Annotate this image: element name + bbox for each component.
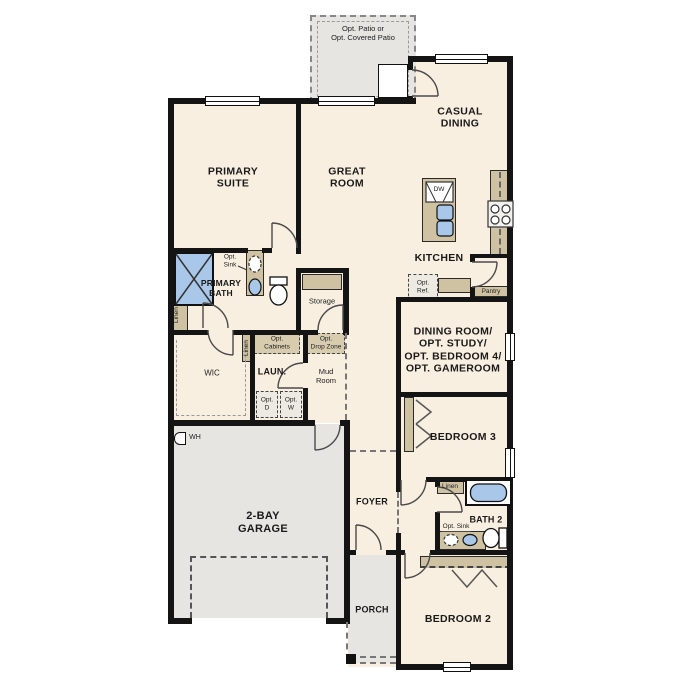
- bath2-vanity: [436, 531, 486, 550]
- wall: [430, 550, 511, 555]
- porch-column-row: [350, 656, 396, 658]
- wall: [435, 512, 440, 550]
- bedroom2-closet-shelf: [420, 556, 511, 568]
- storage-cabinet: [302, 274, 342, 290]
- wall: [507, 56, 513, 670]
- label-opt-drop-zone: Opt. Drop Zone: [311, 335, 342, 350]
- wall: [168, 420, 315, 426]
- label-opt-washer: Opt. W: [285, 396, 297, 411]
- label-opt-ref: Opt. Ref.: [417, 279, 429, 294]
- patio-door-recess: [378, 64, 408, 98]
- label-great-room: GREAT ROOM: [328, 166, 365, 191]
- wall: [386, 550, 396, 555]
- counter-centerline: [499, 172, 501, 254]
- label-bedroom2: BEDROOM 2: [425, 613, 491, 625]
- label-dining-flex: DINING ROOM/ OPT. STUDY/ OPT. BEDROOM 4/…: [404, 325, 501, 375]
- floor-plan: PRIMARY SUITE GREAT ROOM CASUAL DINING K…: [0, 0, 687, 687]
- label-foyer: FOYER: [356, 497, 388, 508]
- bedroom3-closet-shelf: [404, 397, 414, 452]
- porch-column-row2: [350, 662, 396, 664]
- label-opt-sink-bath2: Opt. Sink: [442, 523, 471, 531]
- label-opt-patio: Opt. Patio or Opt. Covered Patio: [331, 25, 395, 43]
- mud-room-opening: [345, 333, 347, 420]
- wall: [343, 268, 349, 330]
- wall: [470, 254, 512, 258]
- label-garage: 2-BAY GARAGE: [238, 510, 288, 536]
- label-primary-suite: PRIMARY SUITE: [208, 166, 258, 191]
- foyer-opening: [350, 450, 396, 452]
- wall: [168, 618, 192, 624]
- label-wic: WIC: [204, 368, 220, 377]
- wall: [346, 550, 356, 555]
- wall: [396, 550, 401, 668]
- label-opt-dryer: Opt. D: [261, 396, 273, 411]
- wall: [470, 254, 475, 262]
- wall: [296, 98, 301, 254]
- wall: [296, 268, 301, 330]
- wall: [396, 482, 401, 492]
- water-heater: [174, 432, 186, 445]
- wall: [396, 533, 401, 550]
- wall: [168, 422, 174, 624]
- label-storage: Storage: [309, 298, 335, 307]
- wall: [168, 248, 248, 253]
- window-primary-suite: [205, 96, 260, 106]
- label-laundry: LAUN.: [258, 367, 287, 378]
- wall: [396, 297, 401, 482]
- wall: [408, 96, 413, 104]
- garage-door-outline: [190, 556, 328, 618]
- label-dishwasher: DW: [434, 186, 445, 194]
- casual-dining-floor: [408, 59, 511, 103]
- window-dining-room: [505, 333, 515, 361]
- label-linen-hall: Linen: [243, 335, 254, 361]
- label-linen-bath2: Linen: [442, 483, 458, 491]
- label-primary-bath: PRIMARY BATH: [201, 278, 241, 298]
- wic-shelving-outline: [176, 340, 246, 416]
- window-casual-dining: [435, 54, 488, 64]
- window-great-room: [318, 96, 375, 106]
- wall: [470, 287, 475, 302]
- label-bath2: BATH 2: [469, 515, 502, 526]
- label-porch: PORCH: [355, 605, 389, 616]
- wall: [168, 98, 174, 428]
- hall-opening: [397, 492, 399, 533]
- label-mud-room: Mud Room: [316, 368, 336, 386]
- window-bedroom2: [443, 662, 471, 672]
- wall: [435, 477, 440, 487]
- wall: [303, 335, 308, 363]
- label-kitchen: KITCHEN: [415, 252, 464, 264]
- wall: [262, 248, 272, 253]
- porch-column: [346, 654, 356, 664]
- wall: [303, 388, 308, 420]
- kitchen-corner-counter: [438, 278, 471, 293]
- label-pantry: Pantry: [482, 288, 501, 296]
- wall: [296, 268, 348, 273]
- window-bedroom3: [505, 448, 515, 478]
- label-opt-sink-primary: Opt. Sink: [224, 253, 237, 268]
- primary-bath-vanity: [246, 250, 264, 296]
- wall: [408, 56, 413, 70]
- wall: [396, 392, 511, 397]
- label-water-heater: WH: [189, 434, 201, 442]
- wall: [396, 297, 511, 302]
- label-opt-cabinets: Opt. Cabinets: [264, 335, 290, 350]
- label-linen-primary: Linen: [173, 301, 187, 329]
- label-bedroom3: BEDROOM 3: [430, 431, 496, 443]
- wall: [168, 330, 208, 335]
- label-casual-dining: CASUAL DINING: [437, 106, 483, 131]
